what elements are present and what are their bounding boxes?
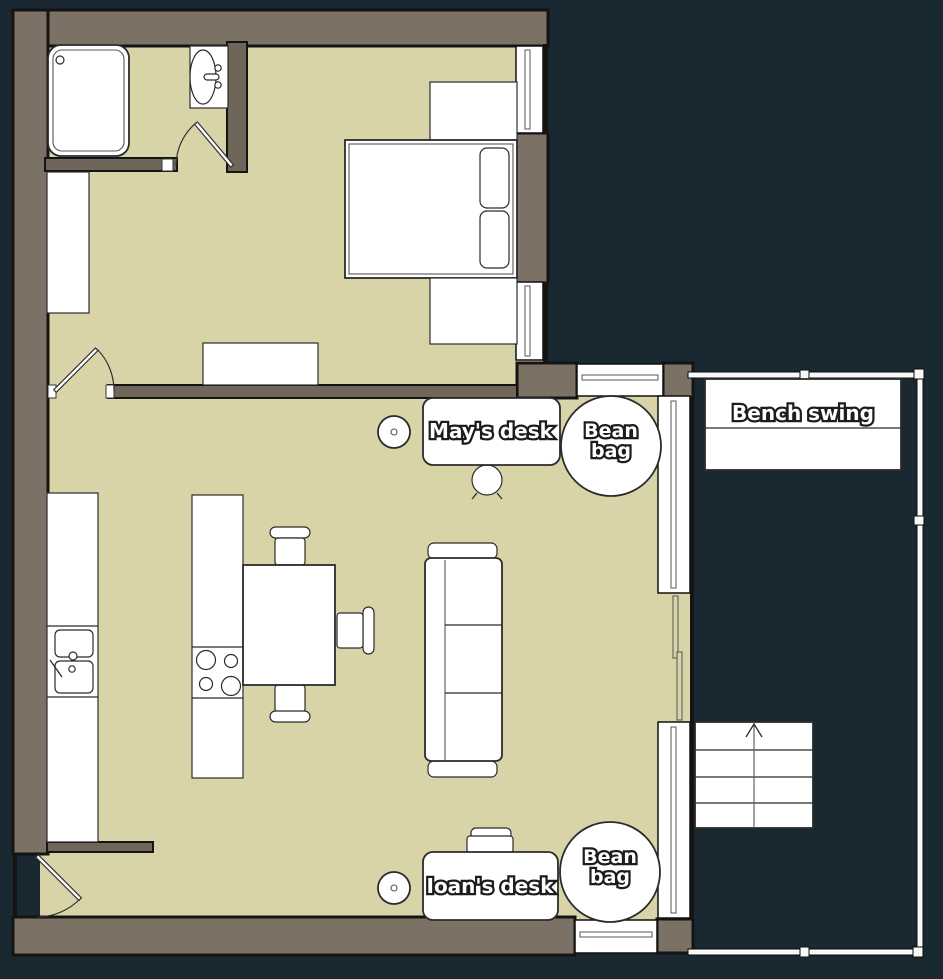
floor-plan: Bench swing	[0, 0, 943, 979]
stairs-up	[695, 722, 813, 828]
living-window-northeast	[577, 364, 663, 396]
shower	[48, 45, 129, 156]
living-window-east-upper	[658, 396, 690, 593]
burner	[225, 655, 238, 668]
shower-drain	[56, 56, 64, 64]
kitchen-counter	[47, 493, 98, 842]
nightstand-south	[430, 278, 517, 344]
bedroom-window-south	[516, 282, 543, 360]
living-window-south	[575, 920, 657, 953]
dining-chair-south	[270, 685, 310, 722]
bedroom-south-wall	[108, 385, 517, 398]
wardrobe	[47, 172, 89, 313]
bedroom-window-north	[516, 46, 543, 133]
wall-west	[13, 10, 48, 854]
dresser	[203, 343, 318, 385]
burner	[200, 678, 213, 691]
wall-south	[13, 917, 575, 955]
living-window-east-lower	[658, 722, 690, 918]
ioans-desk-label: Ioan's desk	[427, 874, 555, 898]
pillow	[480, 211, 509, 268]
mays-desk-label: May's desk	[429, 419, 554, 443]
bean-bag-north: Bean bag	[561, 396, 661, 496]
railing-post	[914, 516, 924, 525]
railing-post	[800, 947, 809, 957]
nightstand-north	[430, 82, 517, 140]
bathroom-east-wall	[227, 42, 247, 172]
wall-post-southeast-bedroom	[517, 363, 577, 398]
bench-swing-label: Bench swing	[732, 401, 874, 425]
waste-bin	[378, 872, 410, 904]
desk-chair	[472, 465, 502, 499]
dining-chair-east	[337, 607, 374, 654]
bean-bag-label-line2: bag	[590, 866, 630, 888]
bathroom-sink	[190, 46, 228, 108]
bean-bag-label-line1: Bean	[583, 846, 637, 868]
bean-bag-label-line1: Bean	[584, 420, 638, 442]
bathroom-south-wall	[45, 158, 177, 171]
bench-swing: Bench swing	[705, 379, 901, 470]
railing-post	[913, 947, 923, 957]
wall-north	[13, 10, 548, 46]
office-chair	[467, 828, 513, 853]
door-jamb	[162, 159, 173, 171]
door-jamb	[106, 385, 114, 398]
wall-post-northeast-living	[663, 363, 693, 398]
burner	[197, 651, 216, 670]
bean-bag-south: Bean bag	[560, 822, 660, 922]
wall-post-southeast-living	[657, 919, 693, 953]
burner	[222, 677, 241, 696]
sofa-armrest	[428, 761, 497, 777]
sofa	[425, 543, 502, 777]
pillow	[480, 148, 509, 208]
sofa-armrest	[428, 543, 497, 559]
floor-plan-svg: Bench swing	[0, 0, 943, 979]
kitchen-stub-wall	[47, 842, 153, 852]
dining-chair-north	[270, 527, 310, 565]
double-bed	[345, 140, 517, 278]
waste-bin	[378, 416, 410, 448]
railing-post	[914, 369, 924, 379]
faucet-icon	[204, 74, 219, 80]
wall-west-door-recess	[13, 854, 17, 917]
railing-east	[917, 372, 923, 955]
island-cooktop	[192, 495, 243, 778]
bean-bag-label-line2: bag	[591, 440, 631, 462]
dining-table	[243, 565, 335, 685]
